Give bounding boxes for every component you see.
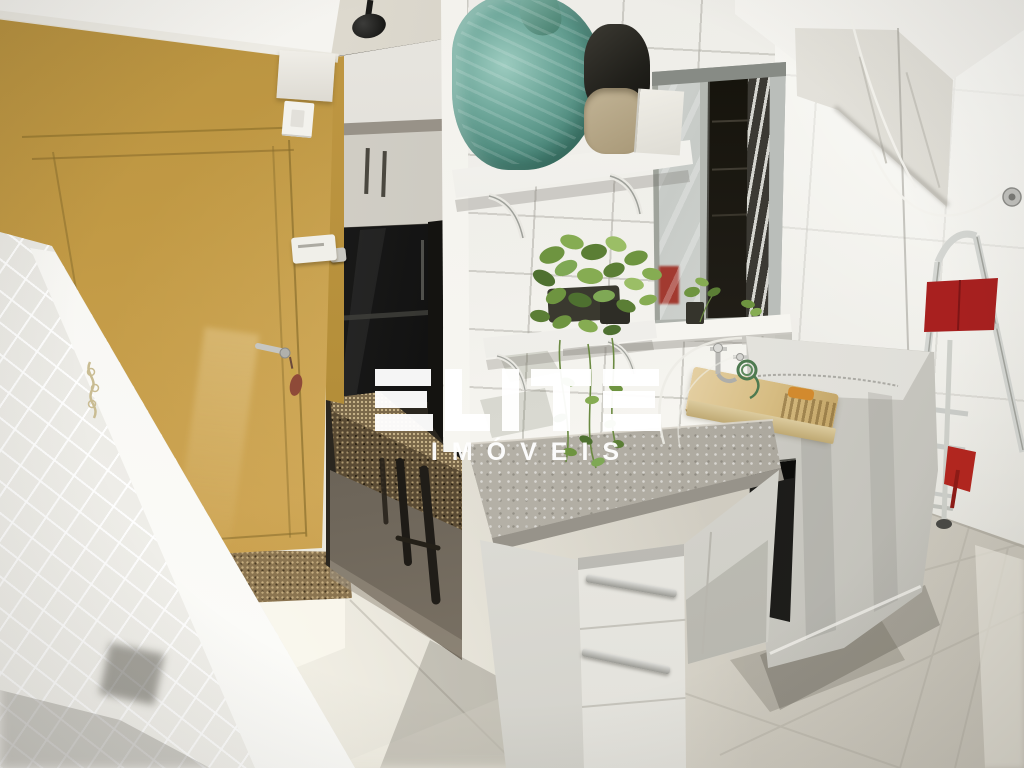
- leaves: [529, 232, 763, 468]
- shelf-brackets: [489, 176, 640, 390]
- plant-pot: [686, 302, 704, 324]
- cover-zipper: [758, 375, 898, 386]
- lock-coiled-cord: [88, 362, 99, 418]
- garden-hose: [738, 361, 758, 398]
- trailing-plant: [529, 232, 763, 468]
- door-handle: [258, 346, 304, 397]
- thin-hose: [678, 356, 736, 448]
- bar-stool: [382, 460, 438, 600]
- thin-hose: [659, 338, 742, 444]
- door-keys: [288, 373, 304, 397]
- detail-layer: [0, 0, 1024, 768]
- real-estate-photo: IMÓVEIS: [0, 0, 1024, 768]
- key-ring-icon: [290, 369, 297, 376]
